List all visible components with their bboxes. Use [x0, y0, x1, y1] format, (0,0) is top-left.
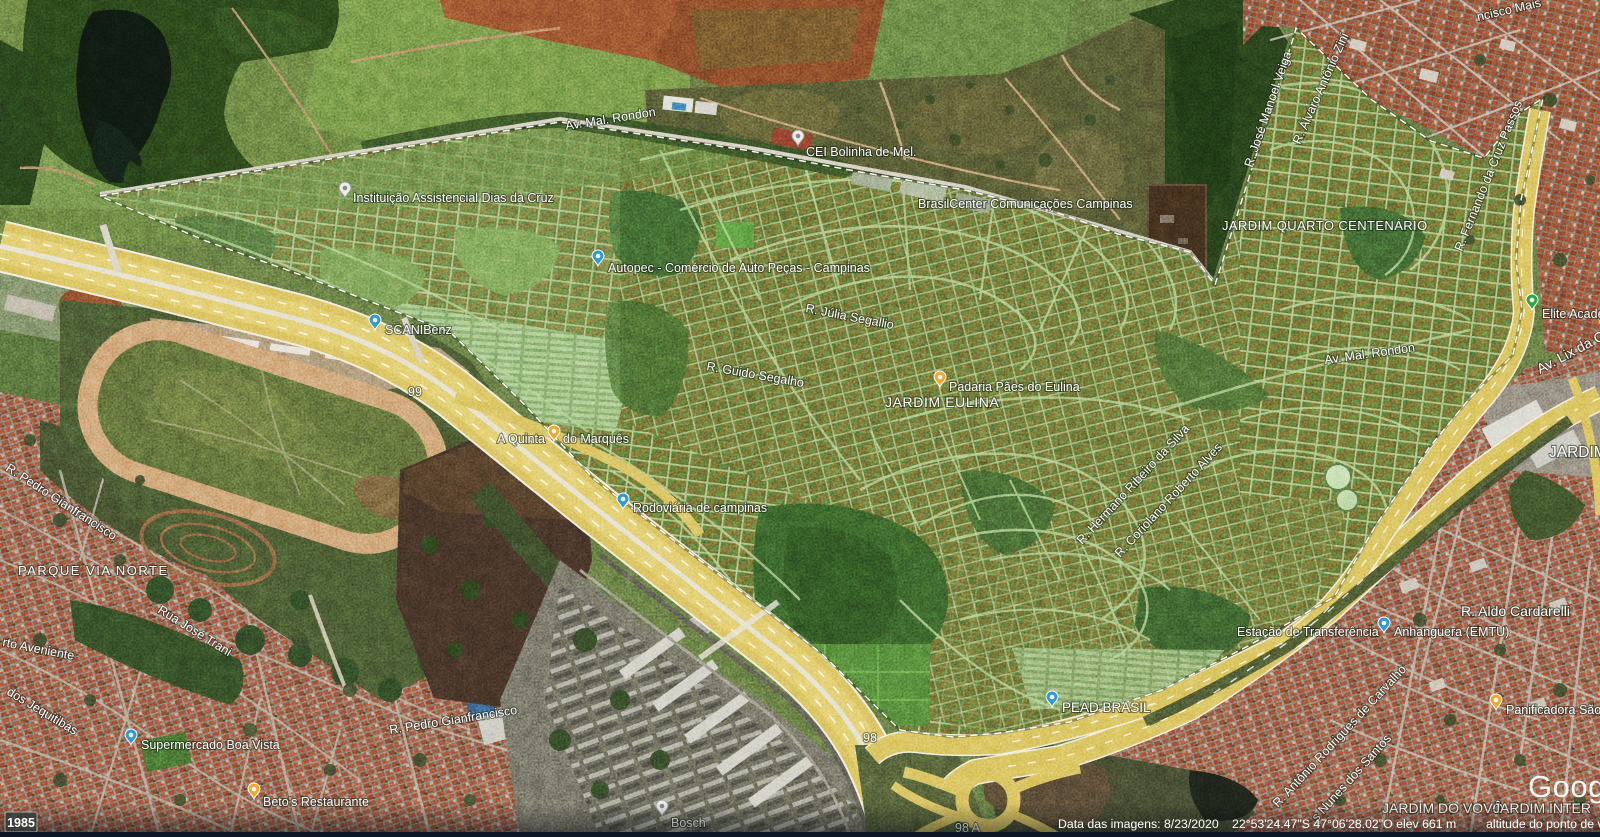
svg-text:BrasilCenter Comunicações Camp: BrasilCenter Comunicações Campinas [918, 197, 1133, 211]
svg-text:do Marquês: do Marquês [563, 432, 629, 446]
svg-text:altitude do ponto de vi: altitude do ponto de vi [1486, 817, 1600, 831]
svg-text:99: 99 [408, 385, 422, 399]
svg-text:CEI Bolinha de Mel.: CEI Bolinha de Mel. [806, 145, 916, 159]
svg-text:R. Aldo Cardarelli: R. Aldo Cardarelli [1461, 603, 1570, 619]
svg-text:Panificadora São: Panificadora São [1506, 703, 1600, 717]
svg-text:PEAD BRASIL: PEAD BRASIL [1062, 700, 1151, 715]
svg-text:1985: 1985 [7, 816, 35, 830]
svg-text:Padaria Pães do Eulina: Padaria Pães do Eulina [949, 380, 1080, 394]
svg-text:Goog: Goog [1528, 769, 1600, 804]
svg-text:Autopec - Comércio de Auto Peç: Autopec - Comércio de Auto Peças - Campi… [608, 261, 870, 275]
svg-text:Elite Acade: Elite Acade [1542, 307, 1600, 321]
svg-text:Estação de Transferência: Estação de Transferência [1237, 625, 1379, 639]
svg-text:Data das imagens: 8/23/2020: Data das imagens: 8/23/2020 [1058, 817, 1219, 831]
svg-text:Rodoviária de campinas: Rodoviária de campinas [633, 501, 767, 515]
svg-text:A Quinta: A Quinta [497, 432, 545, 446]
svg-text:JARDIM EULINA: JARDIM EULINA [885, 394, 999, 410]
svg-text:Supermercado Boa Vista: Supermercado Boa Vista [141, 738, 280, 752]
svg-text:22°53'24.47"S 47°06'28.02"O: 22°53'24.47"S 47°06'28.02"O elev 661 m [1232, 817, 1456, 831]
svg-text:JARDIM: JARDIM [1549, 444, 1600, 461]
svg-text:SCANIBenz: SCANIBenz [385, 323, 452, 337]
svg-text:98: 98 [863, 731, 877, 745]
svg-text:PARQUE VIA NORTE: PARQUE VIA NORTE [18, 563, 169, 578]
svg-text:Instituição Assistencial Dias: Instituição Assistencial Dias da Cruz [353, 191, 554, 205]
svg-text:JARDIM QUARTO CENTENÁRIO: JARDIM QUARTO CENTENÁRIO [1222, 218, 1428, 233]
svg-text:Anhanguera (EMTU): Anhanguera (EMTU) [1394, 625, 1509, 639]
